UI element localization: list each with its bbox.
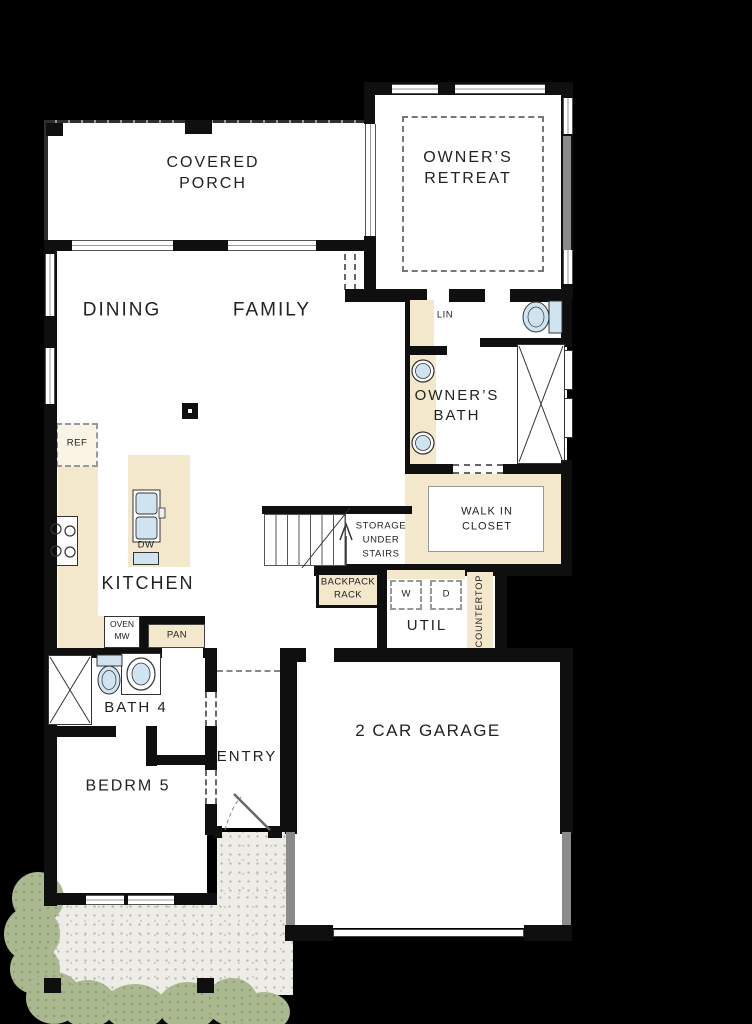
shower: [48, 655, 92, 725]
garage-right-wall: [560, 648, 573, 834]
window: [86, 895, 124, 905]
room-label-kitchen: KITCHEN: [101, 572, 194, 596]
garage-right-wall-gray: [562, 832, 571, 928]
label-dw: DW: [138, 540, 155, 553]
shower: [517, 344, 565, 464]
room-label-walk-in-closet: WALK IN CLOSET: [447, 504, 527, 533]
room-label-family: FAMILY: [233, 297, 311, 322]
garage-left-wall: [285, 648, 297, 834]
garage-left-wall-gray: [286, 832, 295, 928]
entry-left-wall: [205, 648, 217, 835]
window: [45, 348, 55, 404]
room-label-covered-porch: COVERED PORCH: [153, 152, 273, 194]
linen-closet: [410, 300, 434, 346]
window: [365, 124, 376, 236]
bush: [104, 984, 166, 1024]
label-countertop: COUNTERTOP: [474, 575, 486, 648]
util-right-wall: [495, 564, 507, 658]
garage-entry-door-gap: [306, 648, 334, 662]
bush: [238, 992, 290, 1024]
wall-segment: [449, 289, 485, 302]
kitchen-counter: [58, 616, 104, 648]
window: [392, 84, 438, 94]
shower-glass: [564, 350, 573, 390]
column-center: [188, 409, 192, 413]
window: [72, 240, 173, 251]
shower-glass: [564, 398, 573, 438]
bath4-door-opening: [205, 692, 217, 726]
porch-post: [197, 978, 214, 993]
wall-segment: [316, 240, 364, 251]
dishwasher: [133, 552, 159, 565]
sink-counter: [121, 653, 161, 695]
room-label-bath4: BATH 4: [104, 698, 167, 718]
window: [563, 98, 573, 134]
room-label-owners-retreat: OWNER’S RETREAT: [411, 147, 526, 189]
floor-plan: COVERED PORCH OWNER’S RETREAT DINING FAM…: [0, 0, 752, 1024]
garage-door: [333, 929, 524, 937]
porch-post: [185, 120, 212, 134]
wall-segment: [148, 616, 205, 624]
label-storage-under-stairs: STORAGE UNDER STAIRS: [347, 519, 415, 560]
retreat-left-wall: [364, 82, 375, 124]
label-lin: LIN: [437, 310, 453, 323]
retreat-left-wall: [364, 236, 376, 292]
room-label-owners-bath: OWNER’S BATH: [407, 386, 507, 426]
window: [45, 254, 55, 316]
room-label-dining: DINING: [83, 297, 162, 322]
ceiling-break-dashed: [217, 670, 280, 672]
wic-right-wall: [561, 460, 572, 566]
label-washer: W: [402, 589, 411, 602]
room-label-util: UTIL: [407, 616, 448, 636]
window: [455, 84, 545, 94]
label-dryer: D: [443, 589, 450, 602]
bedrm5-door-opening: [205, 770, 217, 804]
porch-side-line: [44, 120, 48, 242]
porch-post: [44, 978, 61, 993]
garage-floor: [290, 655, 565, 928]
label-backpack-rack: BACKPACK RACK: [313, 576, 383, 603]
room-label-bedrm5: BEDRM 5: [85, 775, 170, 796]
entry-floor: [215, 648, 280, 828]
porch-post: [46, 123, 63, 136]
tray-ceiling-dashed: [402, 116, 544, 272]
garage-bottom-wall: [285, 925, 333, 941]
garage-bottom-wall: [524, 925, 572, 941]
label-ref: REF: [67, 438, 88, 451]
room-label-garage: 2 CAR GARAGE: [355, 720, 501, 742]
stairs: [264, 514, 346, 566]
wall-segment: [140, 616, 148, 648]
wall-segment: [173, 240, 228, 251]
window: [128, 895, 174, 905]
cased-opening: [344, 254, 356, 290]
cased-opening: [453, 464, 503, 474]
wd-shelf: [387, 570, 465, 579]
window: [563, 250, 573, 284]
wall-segment: [405, 346, 447, 355]
wall-segment: [44, 726, 116, 737]
retreat-right-wall-gray: [563, 136, 571, 250]
stairs-top-wall: [262, 506, 412, 514]
label-oven-mw: OVEN MW: [104, 619, 140, 643]
label-pan: PAN: [167, 630, 187, 643]
front-door-jamb: [268, 826, 282, 838]
wall-segment: [146, 755, 208, 765]
front-door-jamb: [213, 826, 222, 838]
window: [228, 240, 316, 251]
room-label-entry: ENTRY: [217, 747, 278, 767]
